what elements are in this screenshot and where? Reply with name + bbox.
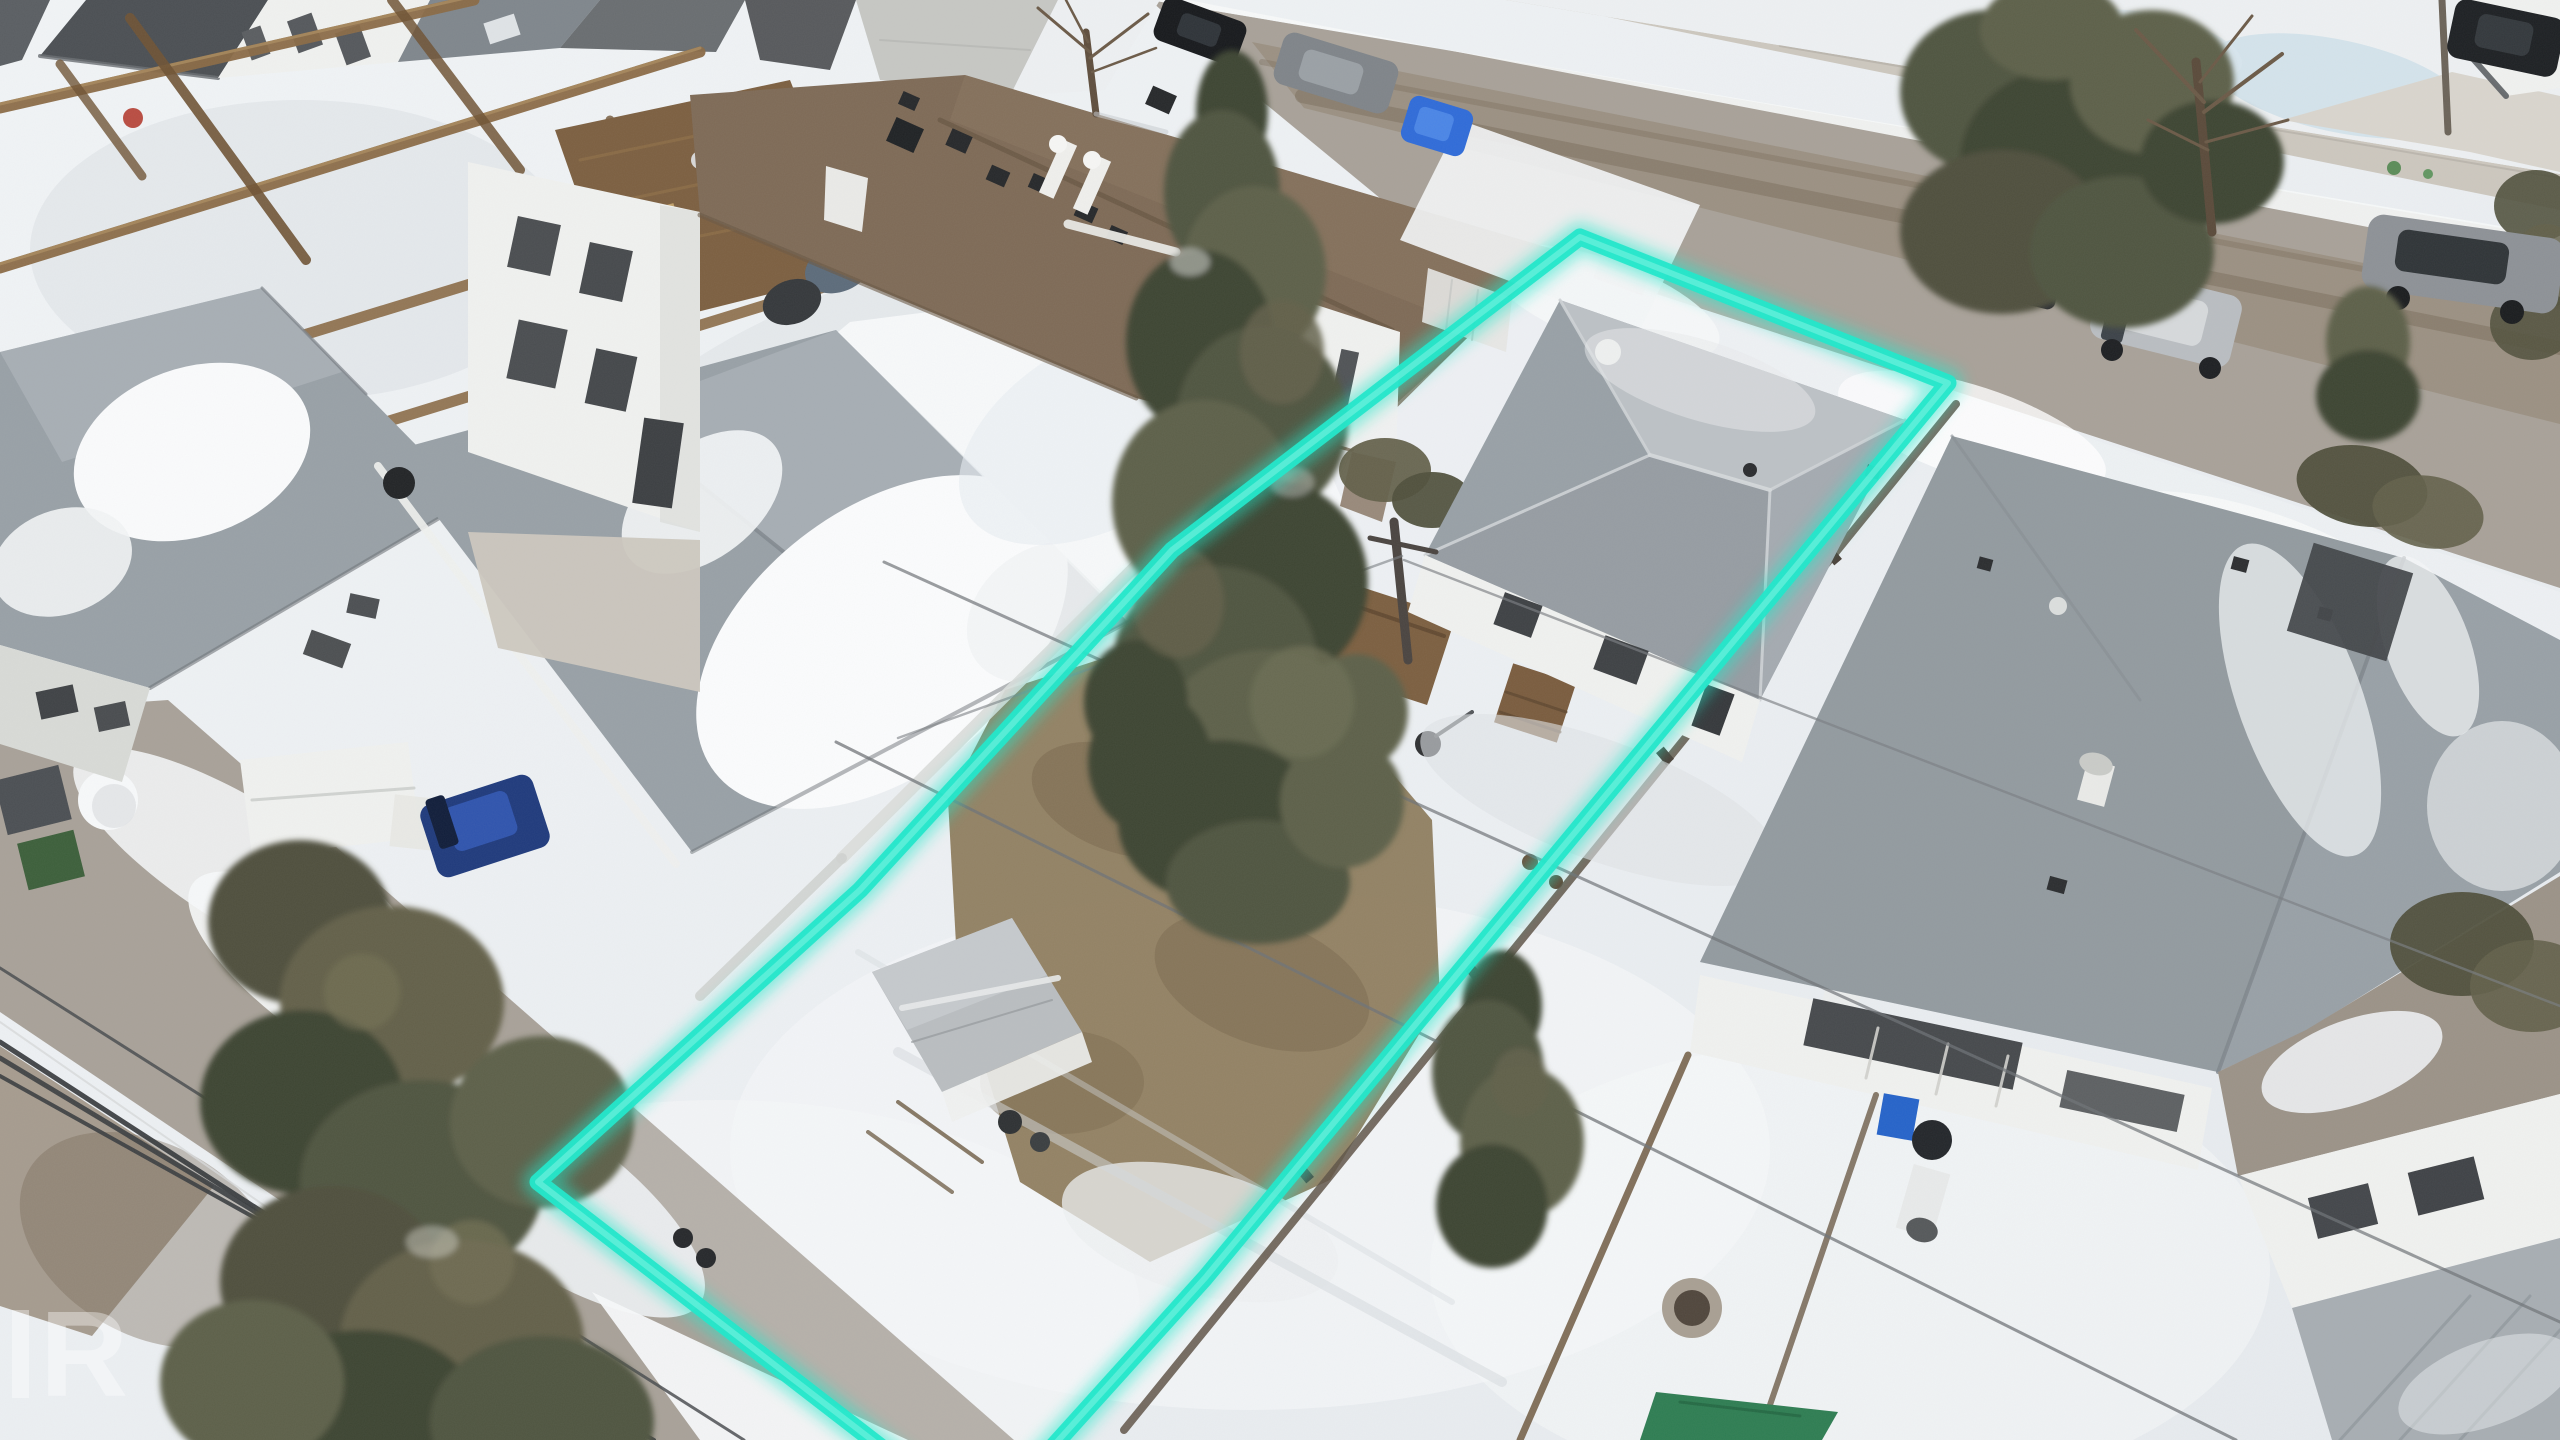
photo-grain <box>0 0 2560 1440</box>
scene-layers <box>0 0 2560 1440</box>
aerial-photo: R <box>0 0 2560 1440</box>
aerial-photo-canvas <box>0 0 2560 1440</box>
